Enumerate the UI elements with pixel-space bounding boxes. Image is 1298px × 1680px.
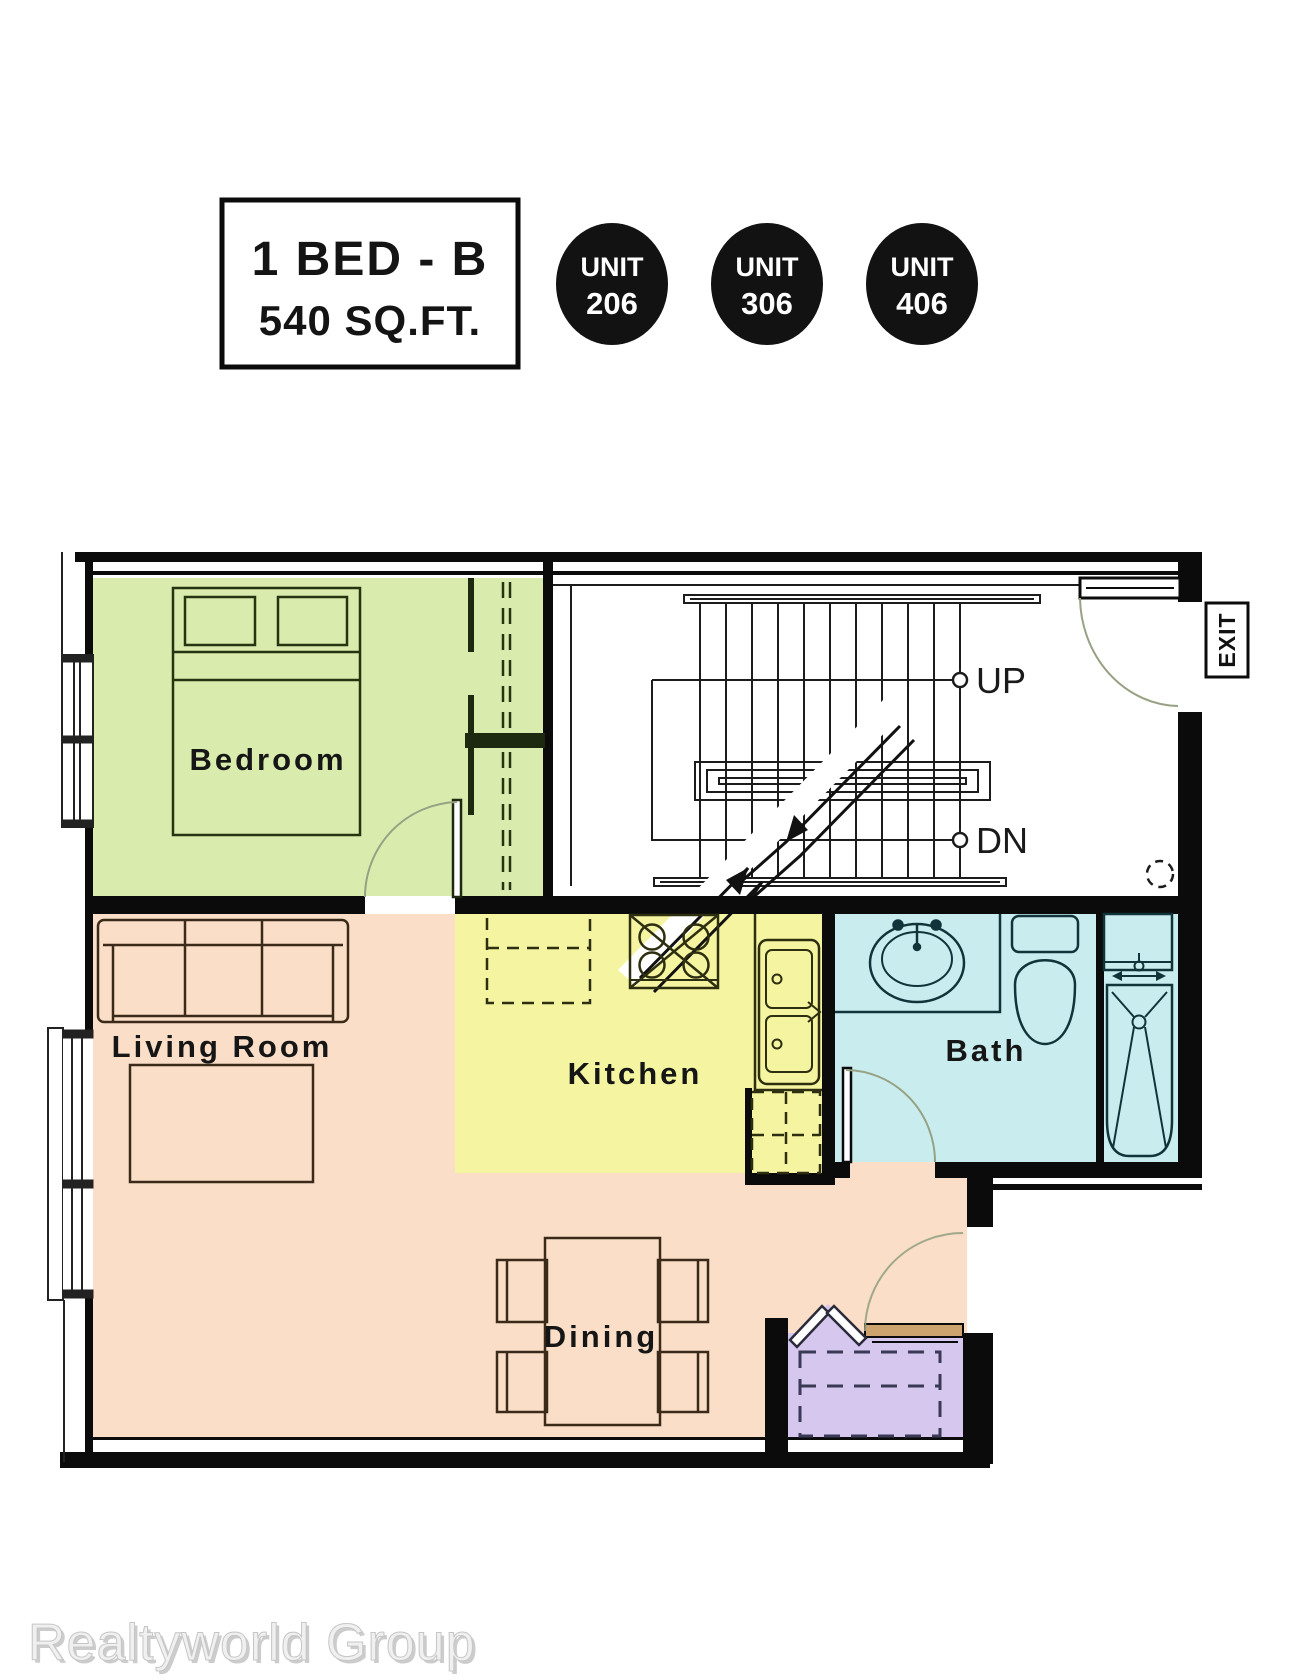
wall-entry-jamb [967,1178,993,1227]
kitchen-label: Kitchen [568,1056,703,1091]
unit-badge-circle [556,223,668,345]
unit-badge-circle [711,223,823,345]
wall-right [1178,712,1202,1178]
wall-mid-right [455,896,1202,914]
wall-mid-left [93,896,365,914]
wall-bath-bottom [935,1162,1202,1178]
bedroom-label: Bedroom [189,742,346,777]
wall-bedroom-closet [468,748,474,815]
wall-kitchen-bath [822,914,835,1178]
stair-treads-icon [700,603,960,878]
living-room-label: Living Room [112,1029,333,1064]
watermark: Realtyworld Group Realtyworld Group [28,1614,479,1675]
up-marker-circle [953,673,967,687]
wall-bedroom-stair [543,562,553,896]
wall-closet-right [963,1333,993,1464]
floor-plan-canvas: 1 BED - B 540 SQ.FT. UNIT 206 UNIT 306 U… [0,0,1298,1680]
stairs-up-label: UP [976,660,1026,701]
unit-badge-number: 306 [741,286,793,321]
unit-badge-label: UNIT [736,252,799,282]
dining-label: Dining [544,1319,658,1354]
wall-kitchen-bottom-stub [745,1173,835,1185]
watermark-text: Realtyworld Group [28,1614,476,1672]
wall-bedroom-closet [468,578,474,652]
wall-bottom [60,1452,990,1468]
wall-top-inner-line [88,571,1192,575]
stairs-down-label: DN [976,820,1028,861]
wall-closet-left [765,1318,788,1464]
unit-badge-306: UNIT 306 [711,223,823,345]
wall-right-jamb-top [1178,562,1202,602]
unit-badge-406: UNIT 406 [866,223,978,345]
plan-area: 540 SQ.FT. [259,297,481,344]
plan-title: 1 BED - B [252,233,489,286]
header: 1 BED - B 540 SQ.FT. UNIT 206 UNIT 306 U… [222,200,978,367]
exit-label: EXIT [1214,612,1240,667]
wall-exterior-edge [993,1184,1202,1190]
bath-label: Bath [946,1033,1027,1068]
wall-left [85,552,93,658]
unit-badge-label: UNIT [581,252,644,282]
unit-badge-number: 206 [586,286,638,321]
wall-left [85,827,93,1030]
unit-badge-label: UNIT [891,252,954,282]
unit-badge-number: 406 [896,286,948,321]
exit-sign: EXIT [1206,603,1248,677]
stair-dashed-circle [1147,861,1173,887]
wall-left [85,1298,93,1464]
down-marker-circle [953,833,967,847]
unit-badge-206: UNIT 206 [556,223,668,345]
floor-plan-page: 1 BED - B 540 SQ.FT. UNIT 206 UNIT 306 U… [0,0,1298,1680]
door-swing-arc [1080,598,1178,706]
unit-badge-circle [866,223,978,345]
exterior-area [967,1178,1298,1468]
wall-top [75,552,1202,562]
wall-closet-shelf [465,733,545,748]
stairwell-door [1080,578,1180,706]
